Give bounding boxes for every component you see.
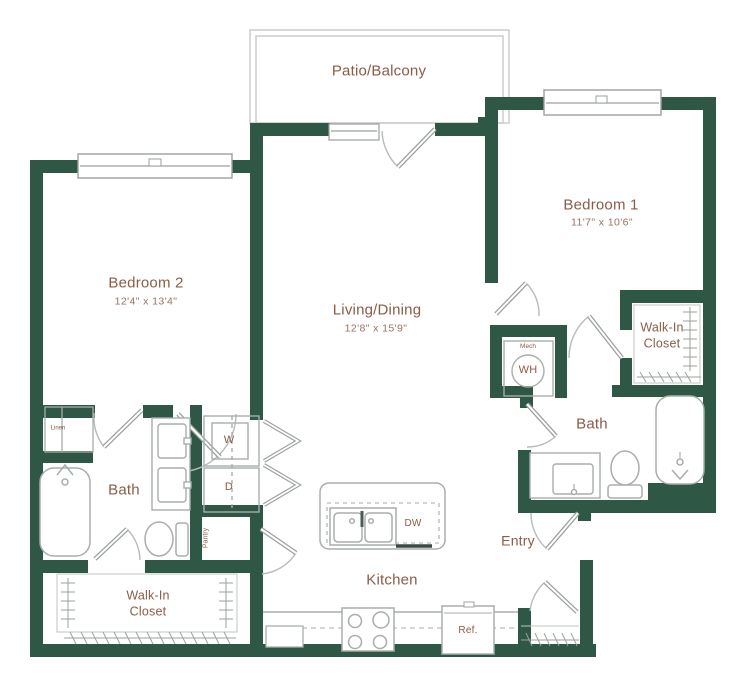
dryer-label: D xyxy=(225,481,233,495)
stove-icon xyxy=(342,608,394,651)
kitchen-island xyxy=(320,483,445,549)
bathtub-main-icon xyxy=(656,396,704,484)
toilet-icon xyxy=(145,522,188,556)
water-heater-label: WH xyxy=(519,364,538,378)
bathtub-icon xyxy=(40,465,90,556)
bifold-doors xyxy=(264,421,298,505)
walkin-main-label: Walk-In Closet xyxy=(640,320,683,351)
kitchen-label: Kitchen xyxy=(366,572,417,591)
linen-label: Linen xyxy=(51,425,66,433)
pantry-label: Pantry xyxy=(203,528,212,548)
refrigerator-label: Ref. xyxy=(458,625,477,638)
washer-dryer-icons xyxy=(204,416,259,512)
vanity-sink-icon xyxy=(152,418,191,510)
washer-label: W xyxy=(224,434,235,448)
floorplan: Patio/Balcony Bedroom 1 11'7" x 10'6" Be… xyxy=(0,0,738,697)
mech-label: Mech xyxy=(520,343,536,351)
bedroom1-label: Bedroom 1 xyxy=(563,197,638,216)
living-label: Living/Dining xyxy=(333,302,421,321)
bath-second-label: Bath xyxy=(108,482,140,501)
living-dims: 12'8" x 15'9" xyxy=(345,322,408,335)
window-living xyxy=(329,124,379,140)
floorplan-graphic xyxy=(0,0,738,697)
entry-label: Entry xyxy=(501,532,535,550)
bath-main-label: Bath xyxy=(576,416,608,435)
walkin-second-label: Walk-In Closet xyxy=(126,588,169,619)
vanity-sink-main-icon xyxy=(530,453,600,498)
kitchen-sink-icon xyxy=(330,508,396,545)
dishwasher-label: DW xyxy=(404,518,421,531)
window-bedroom1 xyxy=(544,90,661,115)
bedroom2-label: Bedroom 2 xyxy=(108,275,183,294)
window-bedroom2 xyxy=(78,154,232,178)
bedroom2-dims: 12'4" x 13'4" xyxy=(115,295,178,308)
patio-label: Patio/Balcony xyxy=(332,63,426,82)
toilet-main-icon xyxy=(608,451,642,498)
bedroom1-dims: 11'7" x 10'6" xyxy=(571,216,633,229)
